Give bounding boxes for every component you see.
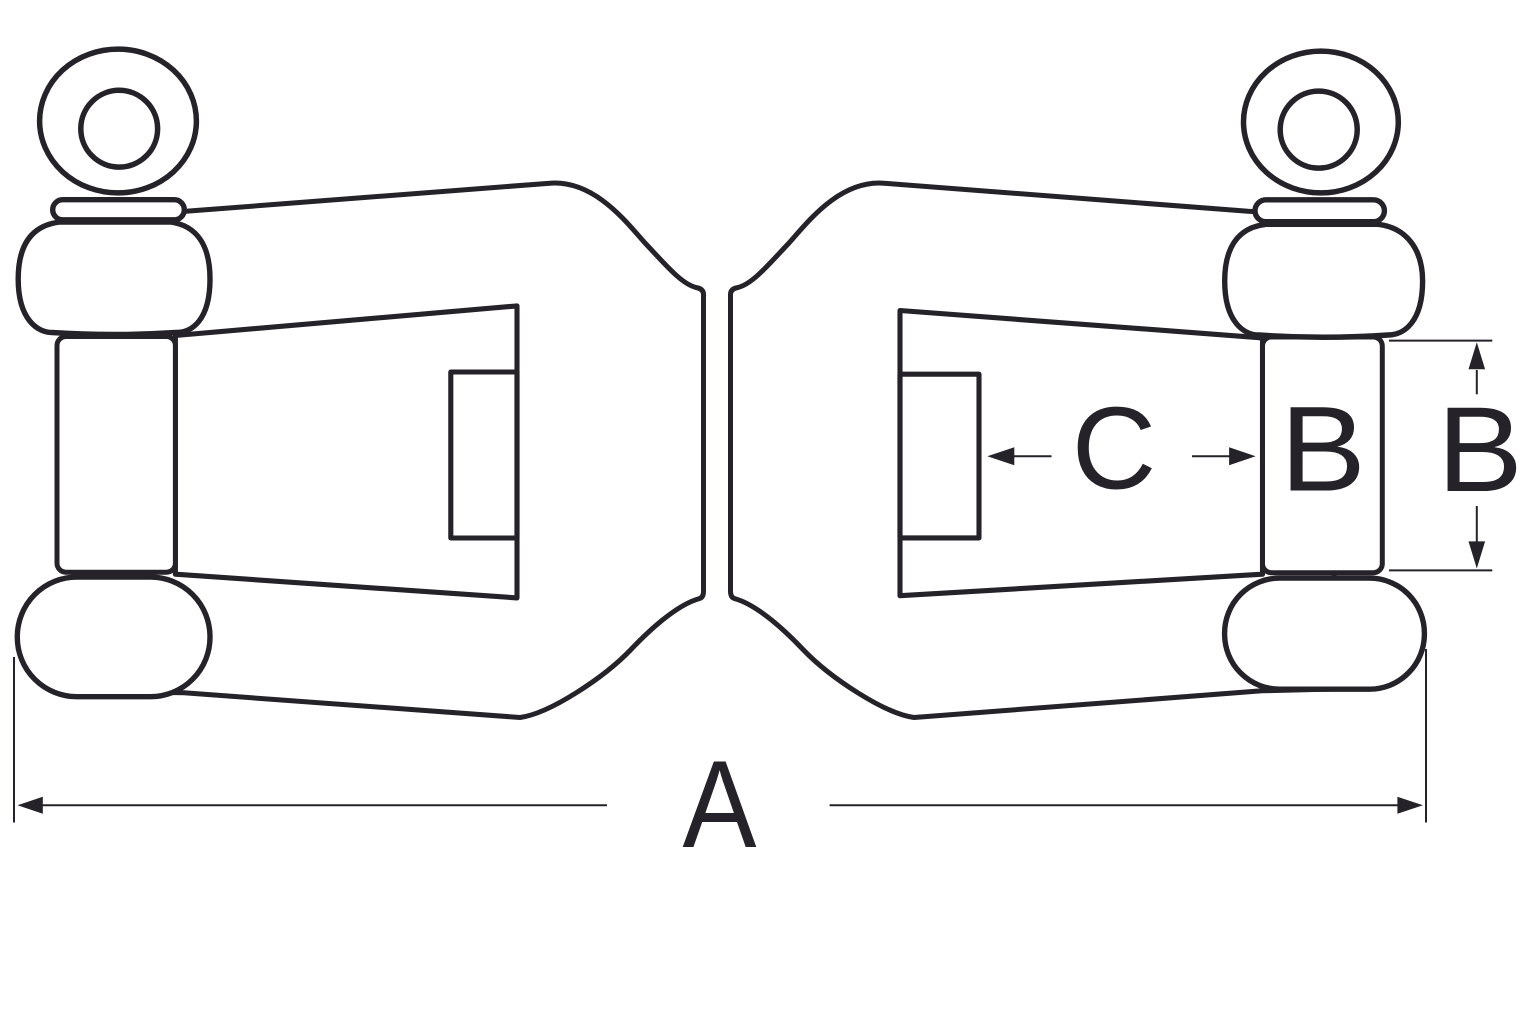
svg-text:C: C (1072, 383, 1157, 514)
svg-text:B: B (1437, 381, 1523, 517)
svg-text:A: A (683, 736, 757, 874)
svg-text:B: B (1280, 381, 1366, 517)
